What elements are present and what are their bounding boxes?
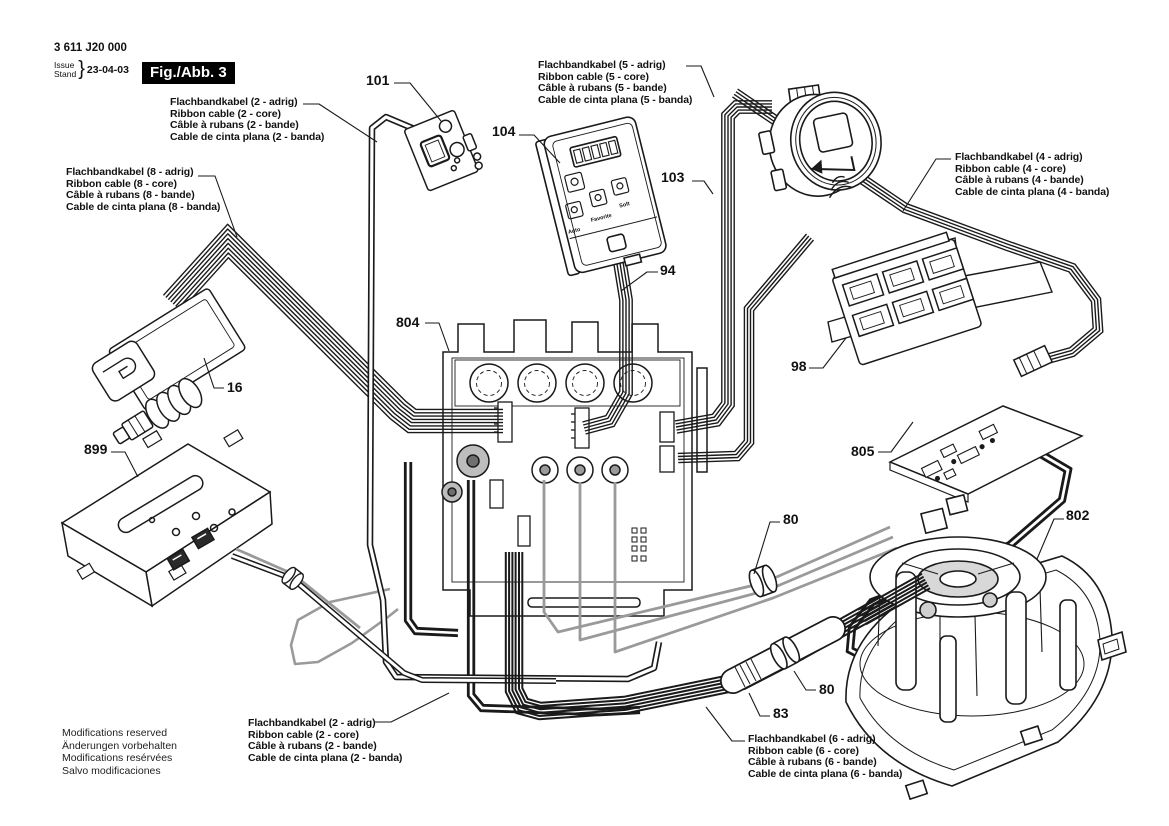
cable-label-2core-top: Flachbandkabel (2 - adrig) Ribbon cable … [170,97,324,143]
part-label-80-lower: 80 [819,681,835,697]
pcb-805 [890,346,1082,502]
cable-label-line: Flachbandkabel (2 - adrig) [248,718,402,730]
footer-line: Modifications resérvées [62,752,177,765]
cable-label-2core-bottom: Flachbandkabel (2 - adrig) Ribbon cable … [248,718,402,764]
brace-glyph: } [78,58,85,81]
cable-label-8core: Flachbandkabel (8 - adrig) Ribbon cable … [66,167,220,213]
terminal-block-98 [829,231,982,366]
leader-804 [425,323,449,351]
part-label-83: 83 [773,705,789,721]
leader-4core [903,159,951,211]
stand-label: Stand [54,70,76,79]
dial-103 [751,72,891,209]
cable-label-line: Flachbandkabel (4 - adrig) [955,152,1109,164]
issue-date: 23-04-03 [87,64,129,76]
part-label-16: 16 [227,379,243,395]
issue-stand-block: Issue Stand } 23-04-03 [54,58,129,81]
leader-802 [1037,519,1064,559]
leader-80-lower [794,671,816,690]
part-label-101: 101 [366,72,389,88]
cable-label-line: Cable de cinta plana (4 - banda) [955,187,1109,199]
main-board-804 [442,320,707,616]
part-label-805: 805 [851,443,874,459]
leader-83 [749,693,770,716]
cable-label-line: Cable de cinta plana (6 - banda) [748,769,902,781]
cable-label-5core: Flachbandkabel (5 - adrig) Ribbon cable … [538,60,692,106]
part-label-94: 94 [660,262,676,278]
part-label-103: 103 [661,169,684,185]
modifications-note: Modifications reserved Änderungen vorbeh… [62,727,177,777]
diagram-page: Auto Favorite Soft 3 611 J20 000 Issue S… [0,0,1169,826]
part-label-804: 804 [396,314,419,330]
cable-label-4core: Flachbandkabel (4 - adrig) Ribbon cable … [955,152,1109,198]
switch-board-101 [404,107,486,191]
document-number: 3 611 J20 000 [54,42,127,54]
valve-16 [74,288,259,453]
part-label-80-upper: 80 [783,511,799,527]
cable-label-line: Flachbandkabel (5 - adrig) [538,60,692,72]
leader-98 [809,338,846,368]
cable-label-line: Cable de cinta plana (2 - banda) [248,753,402,765]
cable-label-line: Flachbandkabel (6 - adrig) [748,734,902,746]
part-label-98: 98 [791,358,807,374]
part-label-899: 899 [84,441,107,457]
control-panel-104: Auto Favorite Soft [535,115,669,279]
leader-805 [878,422,913,452]
footer-line: Änderungen vorbehalten [62,740,177,753]
leader-103 [692,181,713,194]
cable-label-line: Cable de cinta plana (2 - banda) [170,132,324,144]
cable-label-line: Cable de cinta plana (5 - banda) [538,95,692,107]
leader-101 [394,83,441,121]
cable-label-line: Flachbandkabel (2 - adrig) [170,97,324,109]
figure-badge: Fig./Abb. 3 [142,62,235,84]
cable-label-line: Cable de cinta plana (8 - banda) [66,202,220,214]
part-label-104: 104 [492,123,515,139]
cable-label-line: Flachbandkabel (8 - adrig) [66,167,220,179]
leader-6core [706,707,745,741]
cable-label-6core: Flachbandkabel (6 - adrig) Ribbon cable … [748,734,902,780]
leader-899 [111,452,138,477]
footer-line: Modifications reserved [62,727,177,740]
footer-line: Salvo modificaciones [62,765,177,778]
part-label-802: 802 [1066,507,1089,523]
